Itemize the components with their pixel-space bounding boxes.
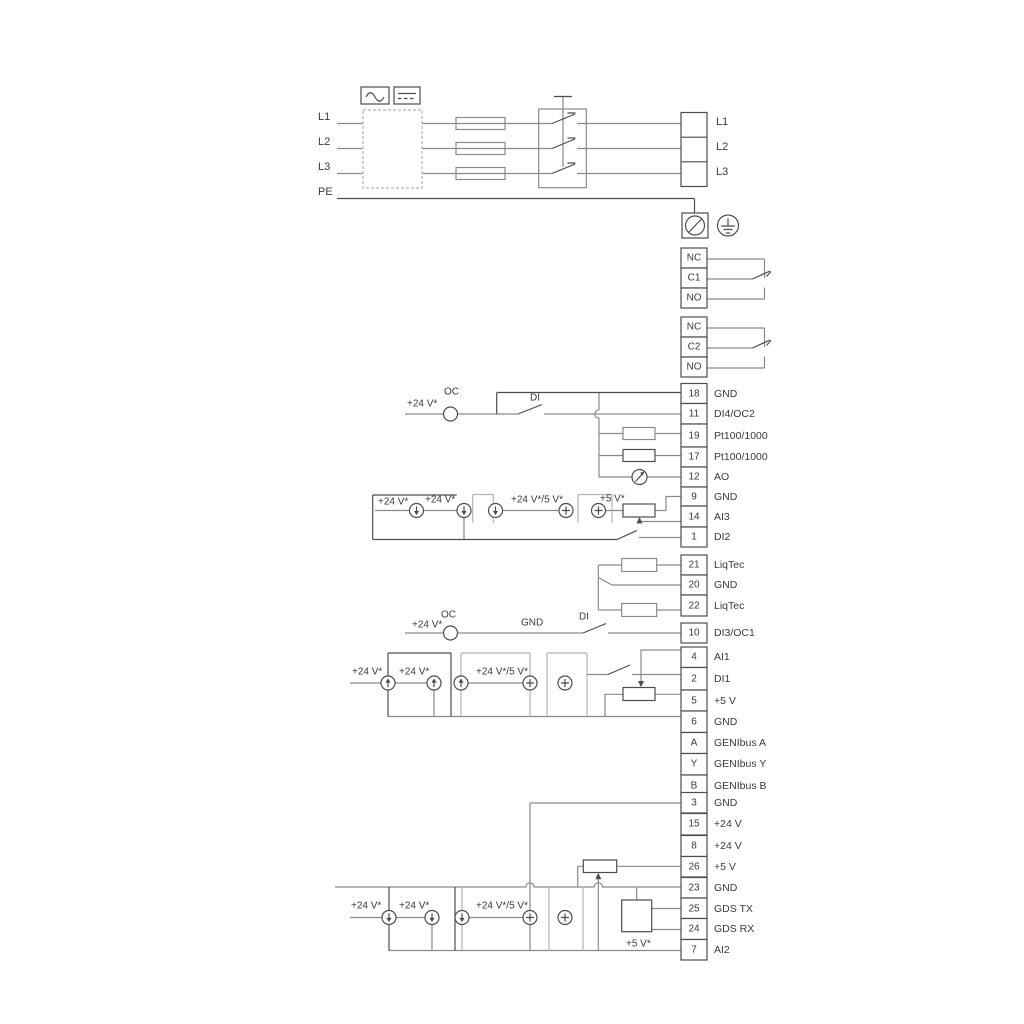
terminal-label: Pt100/1000 <box>714 430 768 442</box>
terminal-label: Pt100/1000 <box>714 451 768 463</box>
voltage-source-icon <box>523 911 537 925</box>
terminal-number: B <box>691 780 698 791</box>
terminal-number: 6 <box>691 717 697 728</box>
open-collector-label: OC <box>444 387 459 398</box>
terminal-label: LiqTec <box>714 600 744 612</box>
terminal-number: 4 <box>691 652 697 663</box>
analog-output-meter-icon <box>632 470 647 485</box>
current-source-icon <box>425 911 439 925</box>
terminal-number: 7 <box>691 945 697 956</box>
potentiometer-ai1 <box>623 688 655 701</box>
current-source-icon <box>381 676 395 690</box>
current-source-icon <box>382 911 396 925</box>
supply-label: +24 V* <box>351 901 381 912</box>
current-source-icon <box>489 504 503 518</box>
option-brackets <box>461 495 612 951</box>
terminal-number: 18 <box>688 388 699 399</box>
terminal-label: GENIbus B <box>714 780 767 792</box>
terminal-label: +5 V <box>714 861 736 873</box>
terminal-number: 22 <box>688 600 699 611</box>
terminal-number: 2 <box>691 674 697 685</box>
liqtec-sensor-1 <box>622 559 657 572</box>
mains-output-label-l1: L1 <box>716 116 728 128</box>
terminal-number: 20 <box>688 580 699 591</box>
terminal-label: LiqTec <box>714 559 744 571</box>
emc-filter-box <box>363 110 422 188</box>
terminal-number: 10 <box>688 628 699 639</box>
mains-output-label-l3: L3 <box>716 166 728 178</box>
supply-label: +24 V* <box>399 666 429 677</box>
supply-label: +24 V* <box>352 666 382 677</box>
ac-symbol-box <box>361 87 389 104</box>
supply-label: +5 V* <box>626 938 651 949</box>
open-collector-icon <box>444 407 458 421</box>
earth-ground-icon <box>718 215 739 236</box>
pt100-resistor-1 <box>623 428 655 440</box>
open-collector-icon <box>444 626 458 640</box>
terminal-label: DI1 <box>714 673 730 685</box>
wiring-diagram: L1 L2 L3 PE L1 L2 L3 NC C1 NO NC C2 NO 1… <box>0 0 1024 1024</box>
terminal-number: 5 <box>691 695 697 706</box>
terminal-label: DI2 <box>714 531 730 543</box>
digital-input-label: DI <box>579 611 589 622</box>
terminal-label: +5 V <box>714 695 736 707</box>
terminal-label: GND <box>714 797 737 809</box>
terminal-label: DI3/OC1 <box>714 627 755 639</box>
relay1-c1: C1 <box>688 273 701 284</box>
terminal-number: 25 <box>688 903 699 914</box>
relay2-c2: C2 <box>688 342 701 353</box>
terminal-label: AI2 <box>714 944 730 956</box>
supply-label: +24 V* <box>399 901 429 912</box>
terminal-number: 11 <box>689 409 699 420</box>
terminal-label: GENIbus A <box>714 737 766 749</box>
potentiometer-ai2 <box>583 860 616 873</box>
terminal-label: +24 V <box>714 818 742 830</box>
terminal-number: 9 <box>691 491 697 502</box>
current-source-icon <box>410 504 424 518</box>
terminal-number: 21 <box>688 560 699 571</box>
supply-label: +24 V* <box>378 496 408 507</box>
liqtec-sensor-2 <box>622 604 657 617</box>
relay2-no: NO <box>687 362 702 373</box>
terminal-label: AI1 <box>714 651 730 663</box>
ground-label: GND <box>521 617 543 628</box>
terminal-label: GND <box>714 491 737 503</box>
supply-label: +24 V* <box>407 399 437 410</box>
terminal-label: AI3 <box>714 511 730 523</box>
terminal-number: 23 <box>688 883 699 894</box>
terminal-number: A <box>691 738 698 749</box>
terminal-number: 1 <box>691 532 697 543</box>
current-source-icon <box>454 676 468 690</box>
pt100-resistor-2 <box>623 450 655 462</box>
pe-screw-terminal <box>682 213 708 238</box>
terminal-label: GENIbus Y <box>714 758 766 770</box>
terminal-label: GND <box>714 388 737 400</box>
mains-input-label-l2: L2 <box>318 136 330 148</box>
current-source-icon <box>427 676 441 690</box>
terminal-label: GND <box>714 882 737 894</box>
voltage-source-icon <box>558 911 572 925</box>
current-source-icon <box>457 504 471 518</box>
terminal-number: 17 <box>688 452 699 463</box>
terminal-label: GDS RX <box>714 923 754 935</box>
digital-input-label: DI <box>530 393 540 404</box>
relay2-nc: NC <box>687 322 701 333</box>
current-source-icon <box>455 911 469 925</box>
terminal-number: 3 <box>691 798 697 809</box>
mains-input-label-l1: L1 <box>318 111 330 123</box>
terminal-label: +24 V <box>714 840 742 852</box>
mains-output-label-l2: L2 <box>716 141 728 153</box>
supply-label: +24 V*/5 V* <box>511 494 563 505</box>
terminal-number: 24 <box>688 924 699 935</box>
potentiometer-ai3 <box>623 504 655 517</box>
terminal-number: 14 <box>688 511 699 522</box>
gds-sensor-box <box>622 900 652 932</box>
supply-label: +24 V* <box>412 619 442 630</box>
voltage-source-icon <box>592 504 606 518</box>
mains-terminal-block <box>681 113 707 187</box>
terminal-label: DI4/OC2 <box>714 408 755 420</box>
terminal-number: 26 <box>688 862 699 873</box>
mains-input-label-l3: L3 <box>318 161 330 173</box>
supply-label: +5 V* <box>600 493 625 504</box>
supply-label: +24 V*/5 V* <box>476 901 528 912</box>
voltage-source-icon <box>559 504 573 518</box>
terminal-number: 12 <box>688 472 699 483</box>
terminal-number: 15 <box>688 819 699 830</box>
terminal-label: GND <box>714 716 737 728</box>
relay1-nc: NC <box>687 253 701 264</box>
terminal-label: AO <box>714 471 729 483</box>
wiring-diagram-canvas <box>0 0 1024 1024</box>
terminal-number: 8 <box>691 841 697 852</box>
mains-input-label-pe: PE <box>318 186 333 198</box>
terminal-number: 19 <box>688 430 699 441</box>
supply-label: +24 V*/5 V* <box>476 666 528 677</box>
relay1-no: NO <box>687 293 702 304</box>
supply-label: +24 V* <box>425 494 455 505</box>
dc-symbol-box <box>394 87 420 104</box>
voltage-source-icon <box>523 676 537 690</box>
terminal-label: GND <box>714 579 737 591</box>
voltage-source-icon <box>558 676 572 690</box>
open-collector-label: OC <box>441 609 456 620</box>
terminal-label: GDS TX <box>714 903 753 915</box>
terminal-number: Y <box>691 759 698 770</box>
